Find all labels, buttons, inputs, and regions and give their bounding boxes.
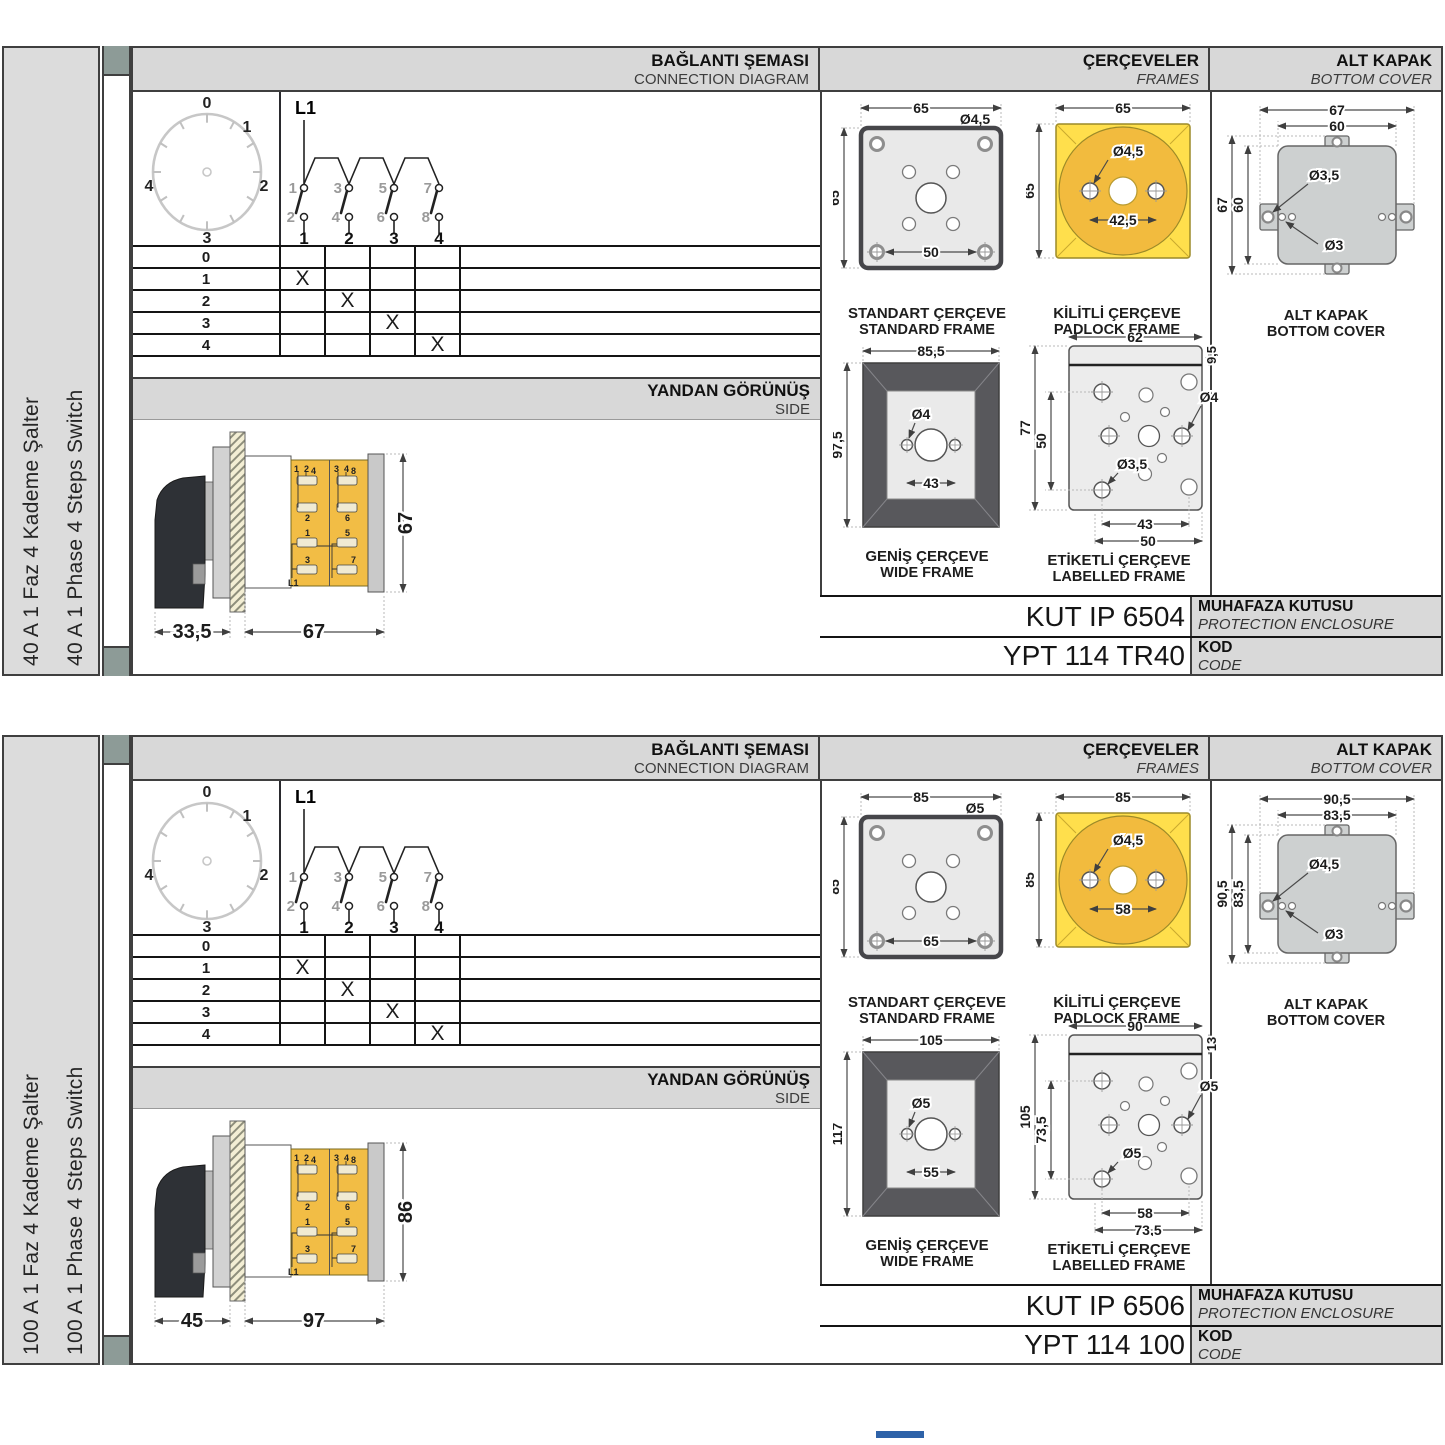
- terminal-number: 3: [389, 918, 398, 934]
- feed-label: L1: [295, 98, 316, 118]
- step-label: 2: [133, 980, 281, 1000]
- frame-caption-tr: STANDART ÇERÇEVE: [833, 994, 1021, 1011]
- terminal-tag: 7: [351, 1244, 356, 1254]
- dial-position-4: 4: [145, 867, 154, 884]
- dim-pitch: 50: [923, 244, 939, 260]
- panel-main: BAĞLANTI ŞEMASI CONNECTION DIAGRAM ÇERÇE…: [131, 735, 1443, 1365]
- frame-caption-en: STANDARD FRAME: [833, 322, 1021, 339]
- enclosure-code-label: MUHAFAZA KUTUSU PROTECTION ENCLOSURE: [1190, 597, 1441, 636]
- frame-caption-tr: STANDART ÇERÇEVE: [833, 305, 1021, 322]
- bottom-cover-drawing: 90,5 83,5 90,5 83,5: [1216, 789, 1436, 987]
- contact-mark: [281, 936, 326, 956]
- dim-pitch-vertical: 73,5: [1033, 1116, 1049, 1143]
- contact-mark: [371, 936, 416, 956]
- contact-mark: X: [281, 269, 326, 289]
- contact-mark: [416, 269, 461, 289]
- product-panel: 100 A 1 Faz 4 Kademe Şalter 100 A 1 Phas…: [0, 735, 1445, 1365]
- product-code-label: KOD CODE: [1190, 1327, 1441, 1363]
- dim-hole: Ø4,5: [960, 111, 991, 127]
- enclosure-code-value: KUT IP 6506: [820, 1286, 1190, 1325]
- standard-frame-figure: 85 Ø5 85 65 STANDART ÇERÇEVE STAND: [833, 785, 1021, 1028]
- cover-caption-en: BOTTOM COVER: [1216, 1013, 1436, 1030]
- header-title-en: BOTTOM COVER: [1210, 71, 1432, 89]
- dim-width-outer: 90,5: [1323, 791, 1350, 807]
- labelled-frame-drawing: 90 13 105 73,5: [1019, 1021, 1219, 1236]
- padlock-frame-drawing: 65 65 Ø4,5 42,5: [1026, 96, 1208, 294]
- contact-mark: [326, 958, 371, 978]
- rotary-dial-diagram: 0 1 2 3 4: [133, 781, 279, 934]
- header-title-tr: ÇERÇEVELER: [820, 740, 1199, 760]
- dim-hole: Ø4,5: [1113, 832, 1144, 848]
- enclosure-code-value: KUT IP 6504: [820, 597, 1190, 636]
- contact-number: 6: [377, 209, 385, 226]
- dial-position-2: 2: [260, 867, 269, 884]
- empty-cell: [461, 936, 820, 956]
- column-divider: [820, 781, 822, 1363]
- dial-position-4: 4: [145, 178, 154, 195]
- dim-hole: Ø5: [912, 1095, 931, 1111]
- binder-spine: [102, 735, 131, 1365]
- header-title-tr: ALT KAPAK: [1210, 51, 1432, 71]
- frame-caption-en: LABELLED FRAME: [1019, 569, 1219, 586]
- terminal-tag: 4: [311, 466, 316, 476]
- frame-caption-tr: KİLİTLİ ÇERÇEVE: [1026, 994, 1208, 1011]
- terminal-tag: 2: [304, 464, 309, 474]
- header-title-en: FRAMES: [820, 71, 1199, 89]
- dim-height: 85: [833, 879, 842, 895]
- dial-position-0: 0: [203, 784, 212, 801]
- terminal-tag: 4: [311, 1155, 316, 1165]
- header-title-en: BOTTOM COVER: [1210, 760, 1432, 778]
- contact-mark: X: [416, 335, 461, 355]
- dim-strip: 9,5: [1204, 346, 1219, 364]
- contact-mark: [326, 335, 371, 355]
- feed-tag: L1: [288, 1267, 299, 1277]
- dim-body-length: 67: [303, 621, 325, 643]
- enclosure-code-row: KUT IP 6504 MUHAFAZA KUTUSU PROTECTION E…: [820, 595, 1441, 636]
- spine-cap-top: [104, 735, 129, 765]
- terminal-number: 4: [434, 918, 444, 934]
- contact-mark: [371, 1024, 416, 1044]
- switching-steps-table: 0 1 X 2 X: [133, 245, 820, 357]
- dial-position-3: 3: [203, 919, 212, 934]
- contact-mark: [416, 980, 461, 1000]
- contact-mark: X: [326, 291, 371, 311]
- dim-height: 105: [1019, 1105, 1033, 1129]
- dim-height: 65: [833, 190, 842, 206]
- dial-position-3: 3: [203, 230, 212, 245]
- contact-mark: [281, 335, 326, 355]
- contact-mark: [371, 958, 416, 978]
- header-title-tr: YANDAN GÖRÜNÜŞ: [133, 381, 810, 401]
- step-label: 0: [133, 936, 281, 956]
- frame-caption-tr: ETİKETLİ ÇERÇEVE: [1019, 552, 1219, 569]
- table-row: 1 X: [133, 958, 820, 980]
- table-row: 1 X: [133, 269, 820, 291]
- standard-frame-drawing: 65 Ø4,5 65 50: [833, 96, 1021, 294]
- dim-pitch: 43: [923, 475, 939, 491]
- dim-width: 105: [919, 1032, 943, 1048]
- padlock-frame-figure: 65 65 Ø4,5 42,5 KİLİTLİ ÇERÇEVE PA: [1026, 96, 1208, 339]
- contact-number: 3: [334, 180, 342, 197]
- label-en: CODE: [1198, 657, 1435, 674]
- product-sidebar: 100 A 1 Faz 4 Kademe Şalter 100 A 1 Phas…: [2, 735, 100, 1365]
- frame-caption-en: STANDARD FRAME: [833, 1011, 1021, 1028]
- dim-pitch: 42,5: [1109, 212, 1136, 228]
- spine-cap-bottom: [104, 1335, 129, 1365]
- terminal-tag: 4: [344, 464, 349, 474]
- dim-hole-tab: Ø3,5: [1309, 167, 1340, 183]
- header-title-en: CONNECTION DIAGRAM: [133, 760, 809, 778]
- labelled-frame-figure: 90 13 105 73,5: [1019, 1021, 1219, 1275]
- dim-pitch-1: 43: [1137, 516, 1153, 532]
- table-row: 4 X: [133, 1024, 820, 1046]
- contact-mark: [281, 291, 326, 311]
- contact-mark: [281, 313, 326, 333]
- product-title-turkish: 40 A 1 Faz 4 Kademe Şalter: [20, 397, 44, 666]
- terminal-number: 1: [299, 918, 308, 934]
- connection-diagram-header: BAĞLANTI ŞEMASI CONNECTION DIAGRAM: [133, 737, 820, 781]
- label-tr: KOD: [1198, 1328, 1435, 1346]
- terminal-tag: 4: [344, 1153, 349, 1163]
- contact-number: 7: [424, 869, 432, 886]
- terminal-tag: 2: [305, 1202, 310, 1212]
- contact-mark: [326, 247, 371, 267]
- feed-label: L1: [295, 787, 316, 807]
- header-title-tr: YANDAN GÖRÜNÜŞ: [133, 1070, 810, 1090]
- contact-mark: [416, 936, 461, 956]
- label-en: PROTECTION ENCLOSURE: [1198, 616, 1435, 633]
- contact-mark: [371, 247, 416, 267]
- contact-number: 1: [289, 869, 297, 886]
- step-label: 4: [133, 1024, 281, 1044]
- terminal-tag: 8: [351, 466, 356, 476]
- empty-cell: [461, 958, 820, 978]
- dim-hole-bottom: Ø3,5: [1117, 456, 1148, 472]
- frame-caption-tr: KİLİTLİ ÇERÇEVE: [1026, 305, 1208, 322]
- contact-mark: [416, 313, 461, 333]
- dim-height: 117: [833, 1122, 845, 1145]
- empty-cell: [461, 1024, 820, 1044]
- table-row: 4 X: [133, 335, 820, 357]
- dim-pitch-2: 50: [1140, 533, 1156, 547]
- empty-cell: [461, 335, 820, 355]
- dim-hole: Ø4: [912, 406, 931, 422]
- frame-caption-tr: GENİŞ ÇERÇEVE: [833, 1237, 1021, 1254]
- dim-hole-small: Ø3: [1325, 926, 1344, 942]
- cover-caption-tr: ALT KAPAK: [1216, 996, 1436, 1013]
- bottom-cover-drawing: 67 60 67 60: [1216, 100, 1436, 298]
- terminal-number: 1: [299, 229, 308, 245]
- dim-pitch-vertical: 50: [1033, 433, 1049, 449]
- contact-circuit-diagram: L1: [281, 781, 820, 934]
- product-code-value: YPT 114 100: [820, 1327, 1190, 1363]
- frame-caption-tr: ETİKETLİ ÇERÇEVE: [1019, 1241, 1219, 1258]
- dial-position-1: 1: [243, 119, 252, 136]
- side-view-header: YANDAN GÖRÜNÜŞ SIDE: [133, 1066, 820, 1109]
- contact-number: 8: [422, 898, 430, 915]
- dim-body-height: 86: [395, 1201, 417, 1223]
- terminal-tag: 1: [305, 528, 310, 538]
- switching-steps-table: 0 1 X 2 X: [133, 934, 820, 1046]
- bottom-cover-header: ALT KAPAK BOTTOM COVER: [1210, 737, 1441, 781]
- padlock-frame-drawing: 85 85 Ø4,5 58: [1026, 785, 1208, 983]
- frame-caption-en: WIDE FRAME: [833, 1254, 1021, 1271]
- terminal-number: 2: [344, 918, 353, 934]
- frames-header: ÇERÇEVELER FRAMES: [820, 48, 1210, 92]
- dim-height: 65: [1026, 183, 1037, 199]
- header-title-en: CONNECTION DIAGRAM: [133, 71, 809, 89]
- standard-frame-figure: 65 Ø4,5 65 50 STANDART ÇERÇEVE STA: [833, 96, 1021, 339]
- side-view-drawing: 1 2 4 2 1 3 L1 3 4 8 6 5 7 45 97 86: [141, 1113, 571, 1338]
- product-sidebar: 40 A 1 Faz 4 Kademe Şalter 40 A 1 Phase …: [2, 46, 100, 676]
- terminal-tag: 8: [351, 1155, 356, 1165]
- terminal-tag: 2: [304, 1153, 309, 1163]
- dial-position-0: 0: [203, 95, 212, 112]
- step-label: 3: [133, 313, 281, 333]
- labelled-frame-drawing: 62 9,5 77 50: [1019, 332, 1219, 547]
- header-title-tr: BAĞLANTI ŞEMASI: [133, 740, 809, 760]
- dim-body-height: 67: [395, 512, 417, 534]
- wide-frame-figure: 85,5 97,5 Ø4 43 GENİŞ ÇERÇEVE WIDE: [833, 343, 1021, 582]
- dim-strip: 13: [1204, 1037, 1219, 1051]
- contact-mark: [281, 980, 326, 1000]
- header-title-en: SIDE: [133, 401, 810, 419]
- dim-width: 90: [1127, 1021, 1143, 1034]
- dim-height-outer: 90,5: [1216, 880, 1230, 907]
- empty-cell: [461, 269, 820, 289]
- dim-height-outer: 67: [1216, 197, 1230, 213]
- catalog-page: 40 A 1 Faz 4 Kademe Şalter 40 A 1 Phase …: [0, 0, 1445, 1445]
- table-row: 0: [133, 247, 820, 269]
- terminal-number: 3: [389, 229, 398, 245]
- padlock-frame-figure: 85 85 Ø4,5 58 KİLİTLİ ÇERÇEVE PADL: [1026, 785, 1208, 1028]
- dim-hole-tab: Ø4,5: [1309, 856, 1340, 872]
- contact-number: 5: [379, 180, 387, 197]
- step-label: 2: [133, 291, 281, 311]
- header-title-tr: BAĞLANTI ŞEMASI: [133, 51, 809, 71]
- step-label: 3: [133, 1002, 281, 1022]
- dim-hole-bottom: Ø5: [1123, 1145, 1142, 1161]
- dim-pitch: 58: [1115, 901, 1131, 917]
- switch-dial-cell: 0 1 2 3 4: [133, 781, 281, 934]
- terminal-tag: 3: [334, 464, 339, 474]
- terminal-tag: 1: [294, 1153, 299, 1163]
- dim-hole-right: Ø4: [1200, 389, 1219, 405]
- label-en: CODE: [1198, 1346, 1435, 1363]
- dim-width-outer: 67: [1329, 102, 1345, 118]
- contact-mark: X: [371, 313, 416, 333]
- column-divider: [820, 92, 822, 674]
- contact-number: 8: [422, 209, 430, 226]
- empty-cell: [461, 313, 820, 333]
- contact-circuit-diagram: L1: [281, 92, 820, 245]
- contact-circuit-cell: L1: [281, 92, 820, 245]
- label-tr: MUHAFAZA KUTUSU: [1198, 1287, 1435, 1305]
- dim-pitch: 65: [923, 933, 939, 949]
- contact-mark: [371, 335, 416, 355]
- label-tr: MUHAFAZA KUTUSU: [1198, 598, 1435, 616]
- bottom-cover-header: ALT KAPAK BOTTOM COVER: [1210, 48, 1441, 92]
- bottom-cover-figure: 90,5 83,5 90,5 83,5: [1216, 789, 1436, 1030]
- dial-position-1: 1: [243, 808, 252, 825]
- terminal-tag: 3: [305, 555, 310, 565]
- terminal-tag: 1: [305, 1217, 310, 1227]
- dim-width: 62: [1127, 332, 1143, 345]
- cover-caption-en: BOTTOM COVER: [1216, 324, 1436, 341]
- dim-width: 85: [913, 789, 929, 805]
- bottom-cover-figure: 67 60 67 60: [1216, 100, 1436, 341]
- step-label: 4: [133, 335, 281, 355]
- dim-handle-depth: 45: [181, 1310, 203, 1332]
- contact-mark: X: [371, 1002, 416, 1022]
- contact-mark: [326, 1024, 371, 1044]
- product-title-turkish: 100 A 1 Faz 4 Kademe Şalter: [20, 1074, 44, 1355]
- dim-hole: Ø4,5: [1113, 143, 1144, 159]
- frames-header: ÇERÇEVELER FRAMES: [820, 737, 1210, 781]
- contact-mark: [416, 1002, 461, 1022]
- product-title-english: 40 A 1 Phase 4 Steps Switch: [64, 389, 88, 666]
- dim-pitch-2: 73,5: [1134, 1222, 1161, 1236]
- terminal-number: 2: [344, 229, 353, 245]
- spine-cap-top: [104, 46, 129, 76]
- dial-position-2: 2: [260, 178, 269, 195]
- terminal-tag: 3: [334, 1153, 339, 1163]
- wide-frame-drawing: 105 117 Ø5 55: [833, 1032, 1021, 1232]
- spine-cap-bottom: [104, 646, 129, 676]
- contact-mark: [371, 269, 416, 289]
- switch-dial-cell: 0 1 2 3 4: [133, 92, 281, 245]
- step-label: 1: [133, 269, 281, 289]
- dim-body-length: 97: [303, 1310, 325, 1332]
- dim-height: 77: [1019, 420, 1033, 436]
- contact-mark: [371, 291, 416, 311]
- terminal-tag: 3: [305, 1244, 310, 1254]
- product-code-label: KOD CODE: [1190, 638, 1441, 674]
- contact-mark: X: [326, 980, 371, 1000]
- contact-mark: [416, 958, 461, 978]
- empty-cell: [461, 247, 820, 267]
- contact-number: 3: [334, 869, 342, 886]
- product-title-english: 100 A 1 Phase 4 Steps Switch: [64, 1066, 88, 1355]
- contact-number: 5: [379, 869, 387, 886]
- side-view-header: YANDAN GÖRÜNÜŞ SIDE: [133, 377, 820, 420]
- dim-hole-small: Ø3: [1325, 237, 1344, 253]
- contact-mark: [326, 313, 371, 333]
- dim-hole-right: Ø5: [1200, 1078, 1219, 1094]
- contact-number: 2: [287, 898, 295, 915]
- dim-width-inner: 60: [1329, 118, 1345, 134]
- table-row: 2 X: [133, 980, 820, 1002]
- enclosure-code-row: KUT IP 6506 MUHAFAZA KUTUSU PROTECTION E…: [820, 1284, 1441, 1325]
- header-title-tr: ÇERÇEVELER: [820, 51, 1199, 71]
- terminal-tag: 6: [345, 1202, 350, 1212]
- contact-mark: [371, 980, 416, 1000]
- table-row: 0: [133, 936, 820, 958]
- dim-width: 65: [913, 100, 929, 116]
- standard-frame-drawing: 85 Ø5 85 65: [833, 785, 1021, 983]
- label-tr: KOD: [1198, 639, 1435, 657]
- cover-caption-tr: ALT KAPAK: [1216, 307, 1436, 324]
- empty-cell: [461, 980, 820, 1000]
- frame-caption-en: LABELLED FRAME: [1019, 1258, 1219, 1275]
- contact-mark: [326, 936, 371, 956]
- terminal-tag: 2: [305, 513, 310, 523]
- binder-spine: [102, 46, 131, 676]
- dim-pitch: 55: [923, 1164, 939, 1180]
- rotary-dial-diagram: 0 1 2 3 4: [133, 92, 279, 245]
- dim-width: 85: [1115, 789, 1131, 805]
- contact-mark: [416, 291, 461, 311]
- header-title-en: SIDE: [133, 1090, 810, 1108]
- contact-mark: [416, 247, 461, 267]
- dim-height-inner: 60: [1230, 197, 1246, 213]
- header-title-tr: ALT KAPAK: [1210, 740, 1432, 760]
- contact-circuit-cell: L1: [281, 781, 820, 934]
- empty-cell: [461, 1002, 820, 1022]
- label-en: PROTECTION ENCLOSURE: [1198, 1305, 1435, 1322]
- terminal-number: 4: [434, 229, 444, 245]
- table-row: 2 X: [133, 291, 820, 313]
- enclosure-code-label: MUHAFAZA KUTUSU PROTECTION ENCLOSURE: [1190, 1286, 1441, 1325]
- dim-height: 97,5: [833, 431, 845, 458]
- terminal-tag: 5: [345, 528, 350, 538]
- contact-mark: [281, 1024, 326, 1044]
- header-title-en: FRAMES: [820, 760, 1199, 778]
- empty-cell: [461, 291, 820, 311]
- dim-width-inner: 83,5: [1323, 807, 1350, 823]
- frame-caption-tr: GENİŞ ÇERÇEVE: [833, 548, 1021, 565]
- contact-number: 7: [424, 180, 432, 197]
- contact-number: 2: [287, 209, 295, 226]
- table-row: 3 X: [133, 313, 820, 335]
- wide-frame-drawing: 85,5 97,5 Ø4 43: [833, 343, 1021, 543]
- dim-hole: Ø5: [966, 800, 985, 816]
- contact-mark: [326, 269, 371, 289]
- panel-main: BAĞLANTI ŞEMASI CONNECTION DIAGRAM ÇERÇE…: [131, 46, 1443, 676]
- product-panel: 40 A 1 Faz 4 Kademe Şalter 40 A 1 Phase …: [0, 46, 1445, 676]
- contact-mark: [281, 247, 326, 267]
- terminal-tag: 7: [351, 555, 356, 565]
- product-code-row: YPT 114 100 KOD CODE: [820, 1325, 1441, 1363]
- labelled-frame-figure: 62 9,5 77 50: [1019, 332, 1219, 586]
- dim-handle-depth: 33,5: [173, 621, 212, 643]
- contact-number: 6: [377, 898, 385, 915]
- contact-mark: X: [281, 958, 326, 978]
- contact-number: 1: [289, 180, 297, 197]
- dim-width: 65: [1115, 100, 1131, 116]
- dim-width: 85,5: [917, 343, 944, 359]
- dim-pitch-1: 58: [1137, 1205, 1153, 1221]
- terminal-tag: 5: [345, 1217, 350, 1227]
- dim-height: 85: [1026, 872, 1037, 888]
- side-view-drawing: 1 2 4 2 1 3 L1 3 4 8 6 5 7 33,5 67 67: [141, 424, 571, 649]
- contact-number: 4: [332, 898, 341, 915]
- contact-mark: [326, 1002, 371, 1022]
- connection-diagram-header: BAĞLANTI ŞEMASI CONNECTION DIAGRAM: [133, 48, 820, 92]
- product-code-row: YPT 114 TR40 KOD CODE: [820, 636, 1441, 674]
- contact-mark: [281, 1002, 326, 1022]
- frame-caption-en: WIDE FRAME: [833, 565, 1021, 582]
- product-code-value: YPT 114 TR40: [820, 638, 1190, 674]
- footer-mark: [876, 1431, 924, 1438]
- dim-height-inner: 83,5: [1230, 880, 1246, 907]
- contact-mark: X: [416, 1024, 461, 1044]
- contact-number: 4: [332, 209, 341, 226]
- terminal-tag: 6: [345, 513, 350, 523]
- table-row: 3 X: [133, 1002, 820, 1024]
- step-label: 0: [133, 247, 281, 267]
